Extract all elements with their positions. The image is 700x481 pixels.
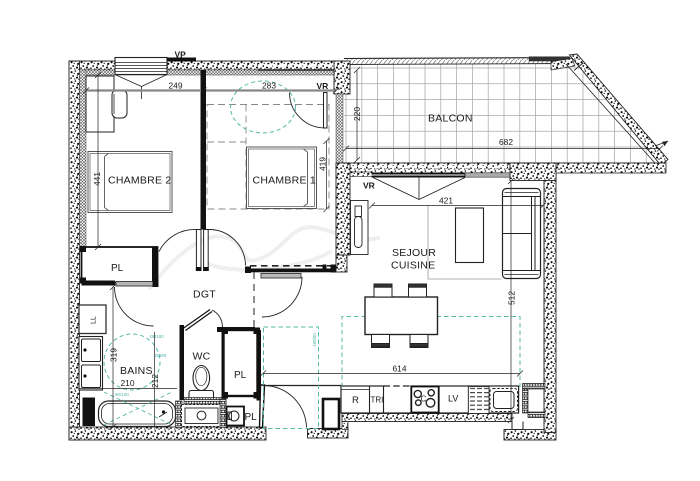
svg-text:SEJOUR: SEJOUR — [392, 247, 436, 259]
svg-text:VP: VP — [175, 50, 187, 60]
svg-text:421: 421 — [439, 196, 453, 206]
svg-text:C: C — [421, 395, 427, 404]
svg-text:682: 682 — [499, 137, 513, 147]
svg-text:210: 210 — [121, 378, 135, 388]
svg-text:220: 220 — [352, 107, 362, 121]
svg-text:BALCON: BALCON — [428, 113, 473, 125]
svg-text:VR: VR — [317, 81, 329, 91]
svg-text:90/120: 90/120 — [115, 392, 129, 397]
svg-text:BAINS: BAINS — [120, 365, 153, 377]
svg-text:TRI: TRI — [371, 396, 384, 405]
svg-text:512: 512 — [507, 291, 517, 305]
svg-text:CUISINE: CUISINE — [391, 260, 435, 272]
svg-text:WC: WC — [193, 351, 211, 363]
svg-text:441: 441 — [92, 172, 102, 186]
svg-text:VR: VR — [363, 181, 375, 191]
svg-text:DGT: DGT — [193, 289, 216, 301]
svg-text:DB90: DB90 — [155, 353, 167, 358]
svg-text:180/60: 180/60 — [312, 333, 317, 347]
svg-text:CHAMBRE 2: CHAMBRE 2 — [108, 175, 172, 187]
svg-text:249: 249 — [169, 81, 183, 91]
svg-text:LL: LL — [91, 316, 98, 324]
svg-text:419: 419 — [318, 157, 328, 171]
svg-text:PL: PL — [234, 370, 247, 381]
svg-text:614: 614 — [393, 364, 407, 374]
svg-text:LV: LV — [448, 394, 458, 404]
svg-text:CHAMBRE 1: CHAMBRE 1 — [253, 175, 317, 187]
svg-text:PL: PL — [245, 412, 258, 423]
svg-text:319: 319 — [109, 348, 119, 362]
svg-text:DB180: DB180 — [150, 334, 164, 339]
svg-text:283: 283 — [262, 81, 276, 91]
svg-text:PL: PL — [111, 263, 124, 274]
svg-text:R: R — [352, 395, 359, 406]
